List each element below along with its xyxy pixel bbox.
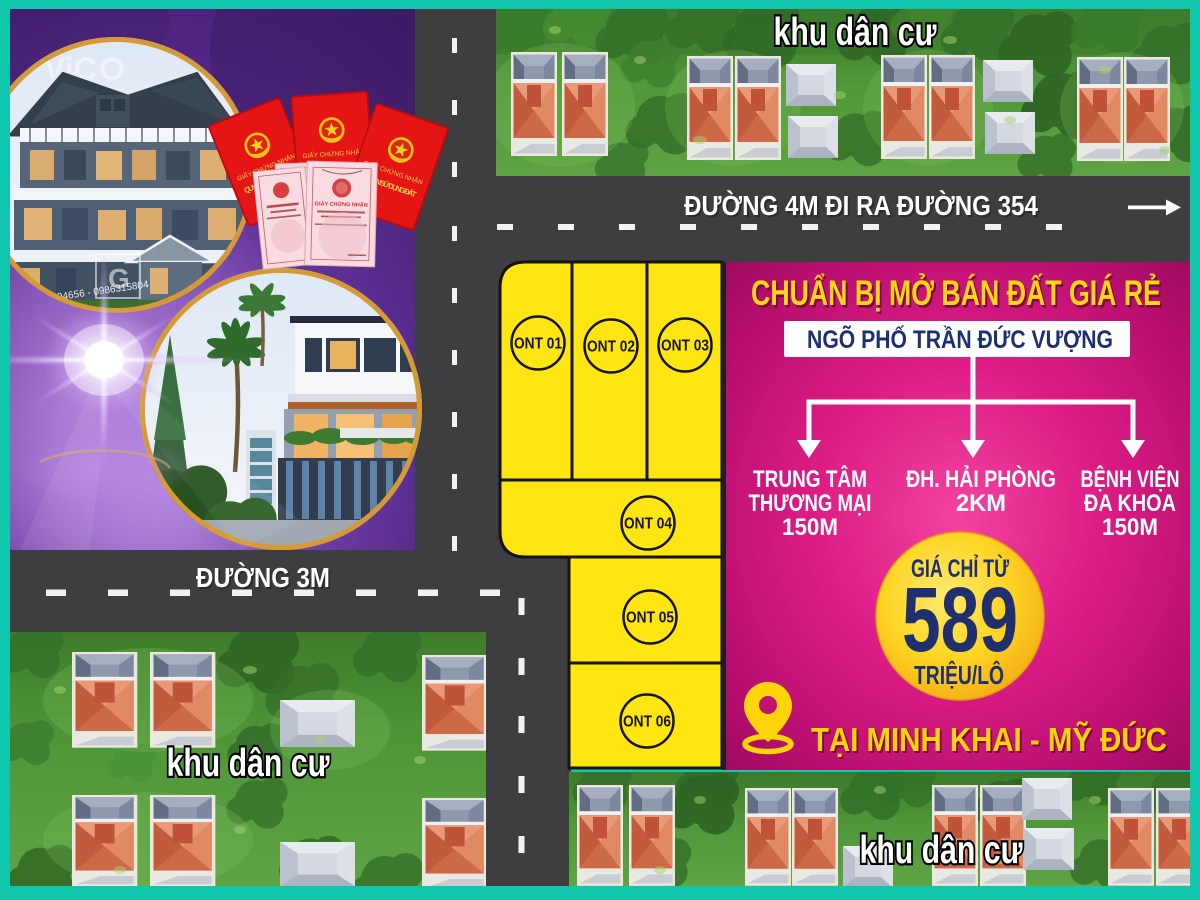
svg-text:ONT 05: ONT 05 [626, 610, 674, 627]
svg-text:CHUẨN BỊ MỞ BÁN ĐẤT GIÁ RẺ: CHUẨN BỊ MỞ BÁN ĐẤT GIÁ RẺ [751, 272, 1161, 312]
svg-text:ONT 03: ONT 03 [661, 338, 709, 355]
svg-text:150M: 150M [1102, 513, 1158, 540]
svg-text:GIẤY CHỨNG NHẬN: GIẤY CHỨNG NHẬN [315, 200, 368, 208]
svg-text:2KM: 2KM [956, 490, 1006, 517]
svg-text:589: 589 [902, 569, 1018, 672]
svg-text:TẠI MINH KHAI - MỸ ĐỨC: TẠI MINH KHAI - MỸ ĐỨC [811, 720, 1167, 758]
svg-text:khu dân cư: khu dân cư [774, 10, 938, 54]
svg-text:NGÕ PHỐ TRẦN ĐỨC VƯỢNG: NGÕ PHỐ TRẦN ĐỨC VƯỢNG [807, 324, 1113, 353]
svg-text:150M: 150M [782, 513, 838, 540]
svg-text:ĐƯỜNG 4M ĐI RA ĐƯỜNG 354: ĐƯỜNG 4M ĐI RA ĐƯỜNG 354 [684, 189, 1038, 221]
svg-text:TRIỆU/LÔ: TRIỆU/LÔ [914, 660, 1004, 690]
svg-text:khu dân cư: khu dân cư [860, 828, 1024, 872]
svg-text:TRUNG TÂM: TRUNG TÂM [753, 465, 867, 493]
svg-text:ONT 06: ONT 06 [623, 714, 671, 731]
svg-text:khu dân cư: khu dân cư [167, 741, 331, 785]
svg-text:ĐH. HẢI PHÒNG: ĐH. HẢI PHÒNG [906, 465, 1056, 492]
svg-text:ONT 04: ONT 04 [624, 516, 673, 533]
svg-text:ONT 02: ONT 02 [587, 339, 635, 356]
svg-text:ONT 01: ONT 01 [514, 336, 562, 353]
svg-text:ĐƯỜNG 3M: ĐƯỜNG 3M [196, 561, 330, 593]
